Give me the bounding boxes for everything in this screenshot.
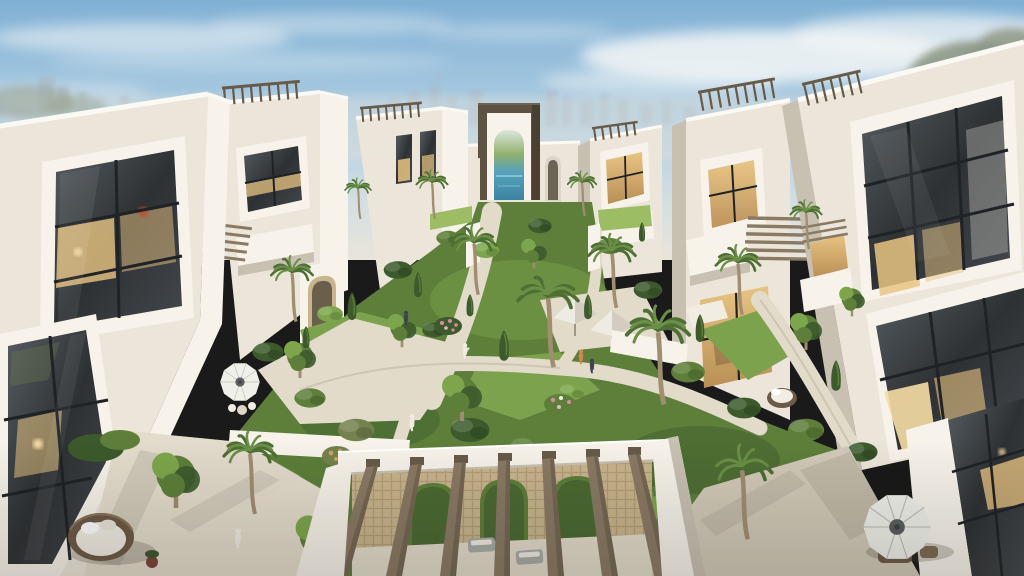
large-window-upper [40,136,194,344]
cypress [348,292,357,320]
pool-view-through-arch [494,130,524,200]
villa-community-scene [0,0,1024,576]
plaza-umbrella-left [220,363,260,415]
bay-window [236,136,310,222]
vignette [0,440,1024,576]
gateway-pavilion [478,104,540,200]
architectural-render-image [0,0,1024,576]
wicker-sofa-right [767,388,797,408]
